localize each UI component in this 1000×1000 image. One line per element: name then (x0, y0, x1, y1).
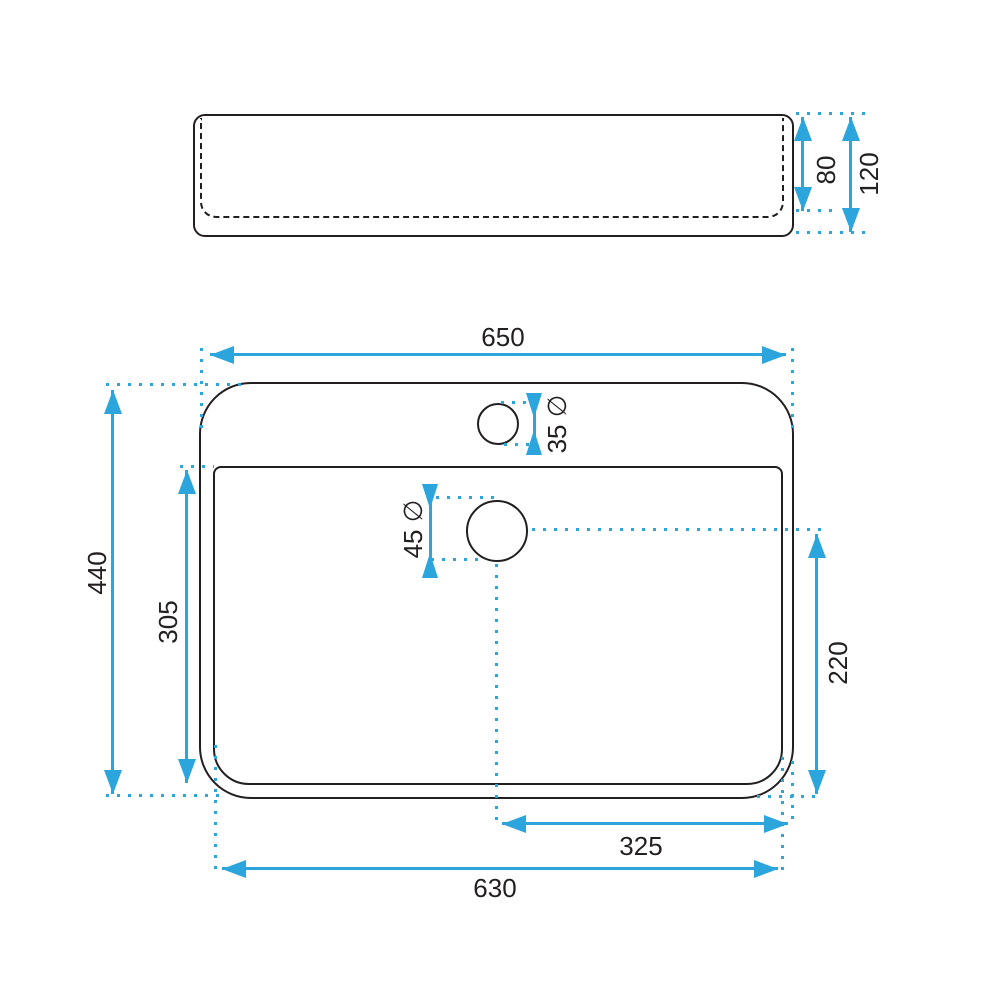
drain-hole (466, 500, 528, 562)
dim-325-label: 325 (619, 833, 662, 859)
extension-line (781, 757, 784, 872)
extension-line (796, 112, 872, 115)
dim-630-label: 630 (473, 875, 516, 901)
dim-650-label: 650 (481, 324, 524, 350)
extension-line (214, 745, 217, 872)
extension-line (791, 761, 794, 827)
dim-305-label: 305 (155, 600, 181, 643)
extension-line (532, 528, 822, 531)
faucet-hole (477, 403, 519, 445)
extension-line (501, 401, 529, 404)
extension-line (495, 564, 498, 826)
dim-440-label: 440 (84, 551, 110, 594)
dim-220-label: 220 (825, 641, 851, 684)
dim-45-diameter-label: 45 ∅ (400, 500, 426, 559)
dim-80-arrow (794, 117, 812, 211)
extension-line (200, 348, 203, 428)
dim-120-label: 120 (856, 152, 882, 195)
dim-35-diameter-arrow (526, 393, 542, 455)
extension-line (791, 348, 794, 428)
extension-line (106, 794, 222, 797)
extension-line (796, 231, 872, 234)
dim-35-diameter-label: 35 ∅ (544, 395, 570, 454)
extension-line (757, 795, 822, 798)
extension-line (431, 558, 479, 561)
side-view-basin-dashed-outline (200, 118, 784, 218)
extension-line (180, 465, 214, 468)
dim-80-label: 80 (813, 156, 839, 185)
extension-line (436, 496, 494, 499)
dimension-drawing: 80 120 650 440 305 (0, 0, 1000, 1000)
extension-line (106, 383, 246, 386)
